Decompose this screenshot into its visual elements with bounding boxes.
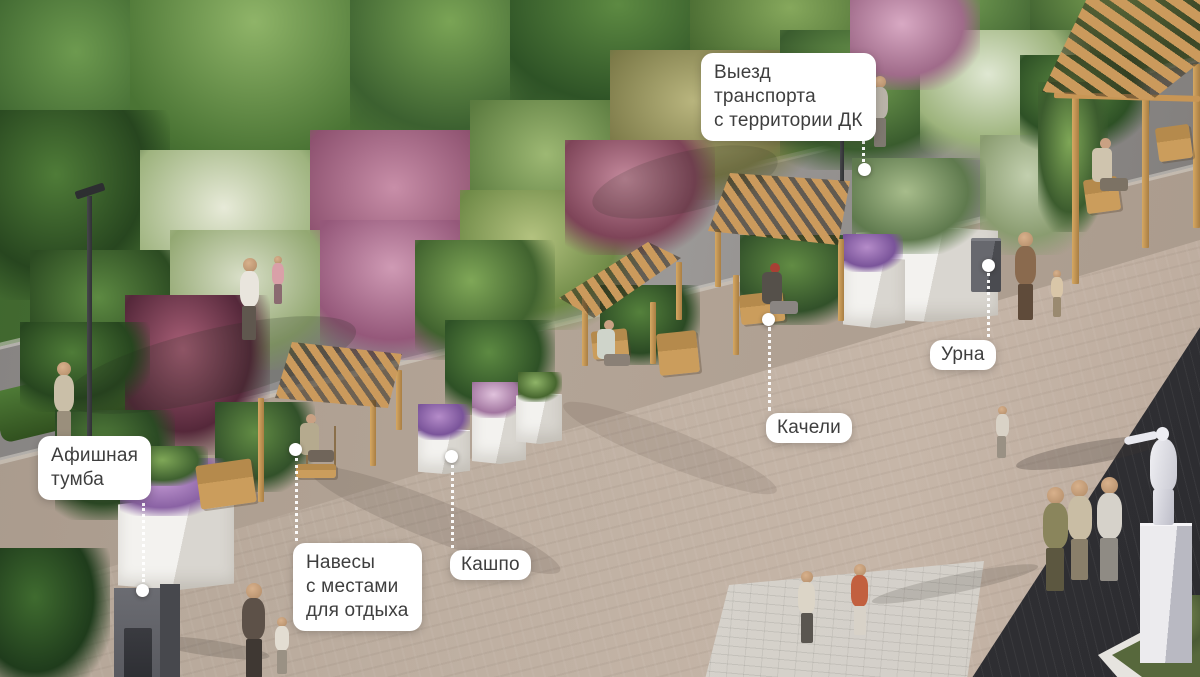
canopy-post [650,302,656,364]
canopy-with-seating [548,232,703,407]
park-improvement-rendering: Выезд транспорта с территории ДК Урна Ка… [0,0,1200,677]
canopy-post [370,400,376,466]
person-legs [604,354,630,366]
canopy-post [396,370,402,430]
person-legs [308,450,334,462]
bench [195,458,257,509]
statue-torso [1150,439,1177,491]
seated-person [758,263,813,343]
poster-column-side [160,584,180,677]
canopy-post [733,275,739,355]
canopy-post [258,398,264,502]
canopy-with-seating [1030,0,1200,296]
seated-person [294,414,344,484]
canopy-post [1072,98,1079,284]
canopy-post [838,239,844,321]
lamp-base [83,442,96,451]
planter-box [118,498,234,590]
statue [1100,405,1200,677]
person-torso [1092,148,1112,182]
trash-bin [971,238,1001,292]
canopy-post [676,262,682,320]
poster-column [114,584,180,677]
person-torso [762,272,782,304]
statue-head [1156,427,1169,441]
canopy-post [1142,98,1149,248]
canopy-with-swing [700,165,860,360]
canopy-post [1193,64,1200,228]
flower-mass [418,404,470,440]
person-legs [770,301,798,314]
canopy-with-seating [250,330,410,515]
lamp-pole [87,196,92,448]
person-legs [1100,178,1128,191]
statue-legs [1153,489,1174,525]
seated-person [592,320,642,395]
planter-box [418,428,470,474]
bench [1155,124,1193,162]
canopy-post [715,229,721,287]
statue-pedestal [1140,523,1192,663]
seated-person [1086,138,1141,223]
poster-column-opening [124,628,152,677]
